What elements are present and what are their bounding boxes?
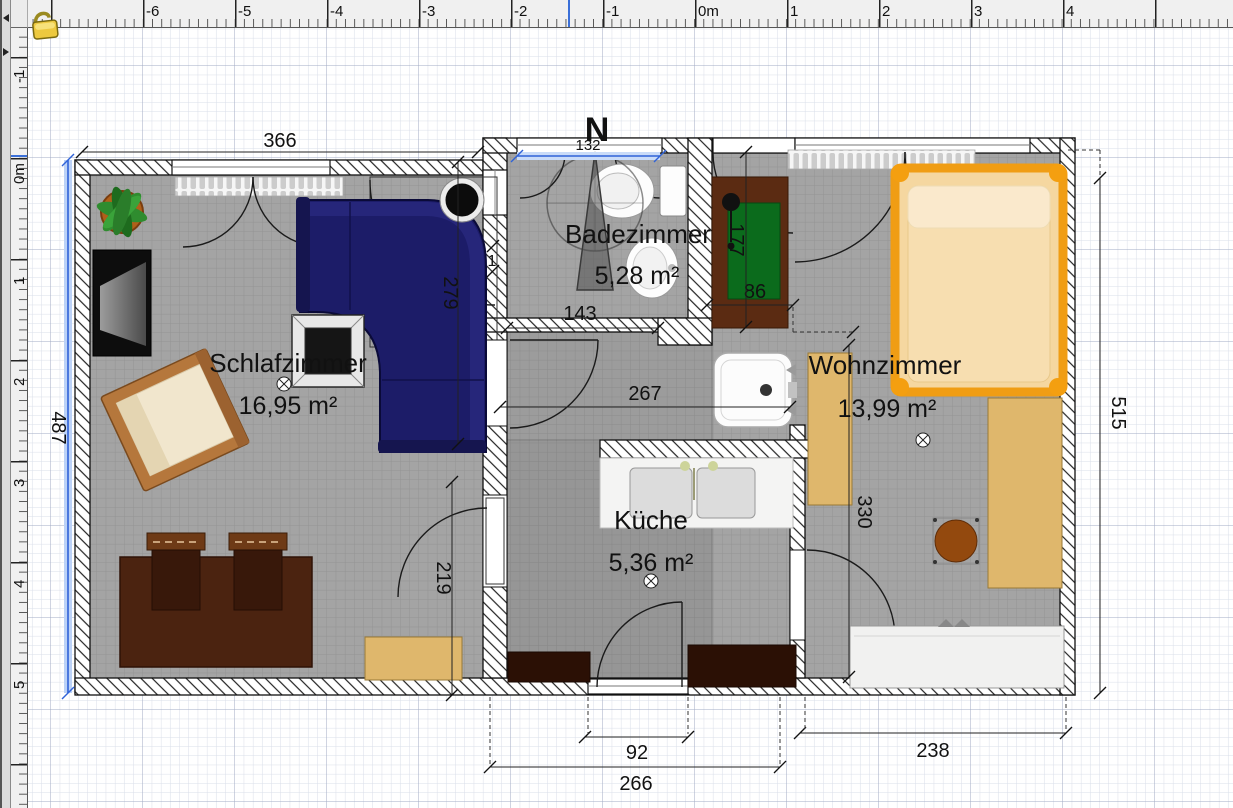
room-area-kueche[interactable]: 5,36 m² [609,549,694,577]
desk[interactable] [988,398,1062,588]
ruler-label: -1 [606,3,619,20]
collapse-left-icon[interactable] [3,14,9,22]
ruler-label: 2 [11,378,28,386]
svg-text:366: 366 [263,130,296,152]
ruler-vertical: -1 0m 1 2 3 4 5 [8,27,28,808]
white-sofa[interactable] [850,619,1064,688]
sideboard[interactable] [365,637,462,680]
room-marker-schlafzimmer [277,377,291,391]
room-label-kueche[interactable]: Küche [614,505,688,535]
wall-kitchen-top[interactable] [600,440,810,458]
bedroom-radiator [175,177,343,196]
ruler-horizontal: -6 -5 -4 -3 -2 -1 0m 1 2 3 4 [27,0,1233,28]
ruler-label: -6 [146,3,159,20]
ruler-label: -1 [11,70,28,83]
wall-left[interactable] [75,160,90,693]
kitchen-window[interactable] [588,679,688,694]
ruler-label: 1 [11,277,28,285]
round-planter[interactable] [440,178,484,222]
ruler-label: 4 [11,580,28,588]
svg-text:177: 177 [725,223,747,256]
kitchen-counter-left[interactable] [508,652,590,682]
wall-bath-jog[interactable] [658,318,712,345]
room-area-schlafzimmer[interactable]: 16,95 m² [239,392,338,420]
lock-icon [26,6,68,44]
dining-chair[interactable] [229,533,287,610]
ruler-label: 4 [1066,3,1074,20]
room-label-badezimmer[interactable]: Badezimmer [565,219,711,249]
svg-text:132: 132 [575,137,600,154]
ruler-label: 5 [11,681,28,689]
floorplan-editor-canvas: N 366 487 132 [0,0,1233,808]
expand-right-icon[interactable] [3,48,9,56]
svg-text:267: 267 [628,383,661,405]
svg-text:266: 266 [619,773,652,795]
tv-cabinet[interactable] [93,250,151,356]
svg-text:330: 330 [853,495,875,528]
ruler-label: -5 [238,3,251,20]
svg-text:515: 515 [1107,396,1129,429]
ruler-cursor-indicator [568,0,570,27]
svg-text:86: 86 [744,281,766,303]
room-area-badezimmer[interactable]: 5,28 m² [595,262,680,290]
splitpane-divider[interactable] [0,0,11,808]
svg-text:1: 1 [488,253,497,270]
toilet[interactable] [590,164,686,218]
ruler-label: -3 [422,3,435,20]
svg-text:487: 487 [47,411,69,444]
svg-text:92: 92 [626,742,648,764]
svg-text:238: 238 [916,740,949,762]
kitchen-counter-right[interactable] [688,645,796,687]
plan-view[interactable]: N 366 487 132 [0,0,1233,808]
ruler-corner [8,0,28,28]
ruler-label: 3 [11,479,28,487]
ruler-label: 0m [11,163,28,184]
room-label-schlafzimmer[interactable]: Schlafzimmer [209,348,367,378]
room-label-wohnzimmer[interactable]: Wohnzimmer [809,350,962,380]
ruler-label: -4 [330,3,343,20]
dining-table[interactable] [120,557,312,667]
ruler-label: 3 [974,3,982,20]
svg-text:143: 143 [563,303,596,325]
room-area-wohnzimmer[interactable]: 13,99 m² [838,395,937,423]
svg-text:279: 279 [439,276,461,309]
ruler-label: 2 [882,3,890,20]
ruler-label: 0m [698,3,719,20]
room-marker-kueche [644,574,658,588]
shower-tray[interactable] [714,353,797,427]
dining-chair[interactable] [147,533,205,610]
ruler-label: -2 [514,3,527,20]
ruler-label: 1 [790,3,798,20]
room-marker-wohnzimmer [916,433,930,447]
svg-text:219: 219 [432,561,454,594]
